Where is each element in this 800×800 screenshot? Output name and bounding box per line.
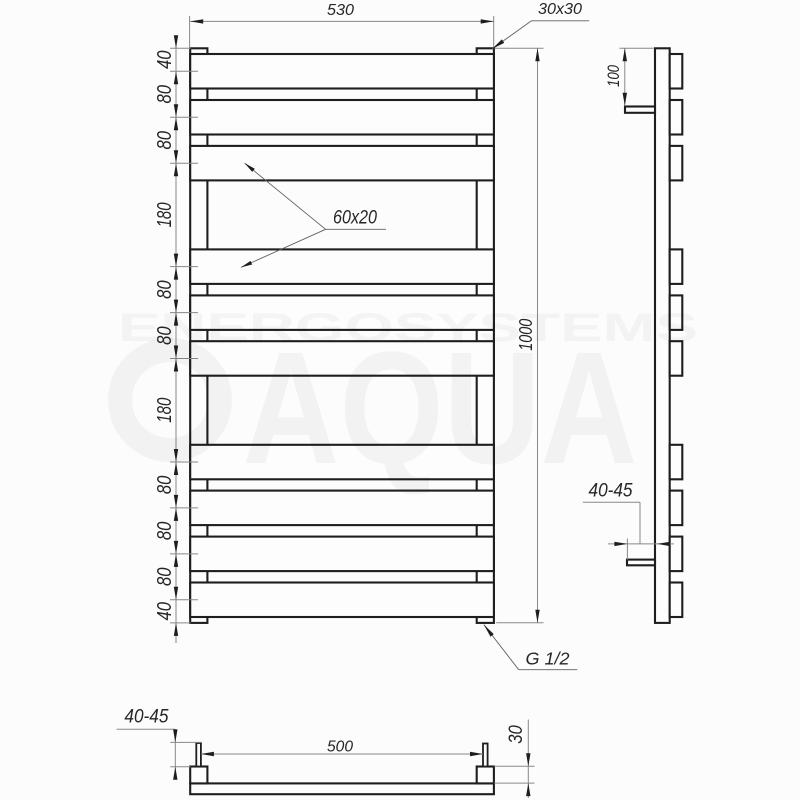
svg-text:AQUA: AQUA <box>243 318 638 497</box>
svg-text:100: 100 <box>604 65 623 87</box>
svg-text:80: 80 <box>153 84 176 103</box>
svg-text:G 1/2: G 1/2 <box>526 649 570 669</box>
svg-text:180: 180 <box>153 397 176 422</box>
svg-text:80: 80 <box>153 475 176 494</box>
svg-text:40: 40 <box>153 602 176 621</box>
svg-text:30: 30 <box>506 725 527 744</box>
svg-text:80: 80 <box>153 521 176 540</box>
svg-text:80: 80 <box>153 280 176 299</box>
svg-text:530: 530 <box>327 2 354 19</box>
svg-text:80: 80 <box>153 130 176 149</box>
svg-text:30x30: 30x30 <box>538 1 582 18</box>
svg-text:40: 40 <box>153 50 176 69</box>
svg-text:180: 180 <box>153 202 176 227</box>
svg-text:80: 80 <box>153 567 176 586</box>
svg-text:60x20: 60x20 <box>333 208 377 229</box>
svg-text:500: 500 <box>327 739 353 756</box>
svg-text:40-45: 40-45 <box>124 707 168 728</box>
